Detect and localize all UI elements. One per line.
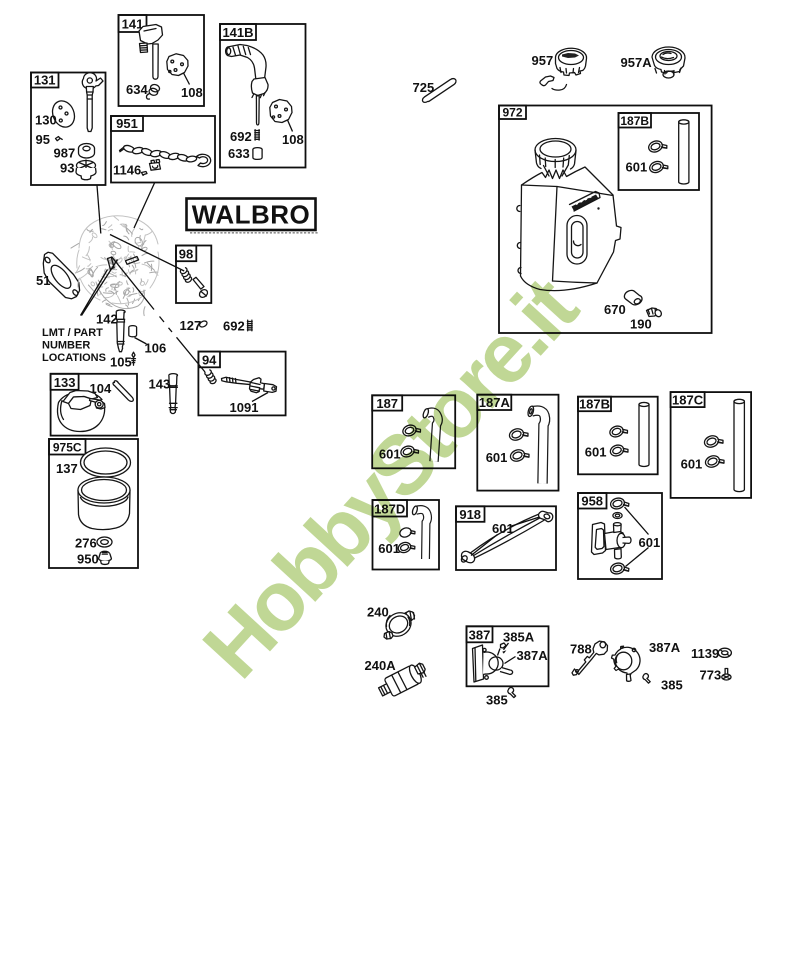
- svg-text:LOCATIONS: LOCATIONS: [42, 352, 106, 364]
- svg-text:670: 670: [604, 302, 626, 317]
- svg-text:187B: 187B: [579, 397, 610, 412]
- svg-text:951: 951: [116, 116, 138, 131]
- svg-text:98: 98: [179, 246, 193, 261]
- svg-text:601: 601: [681, 457, 703, 472]
- svg-text:725: 725: [413, 80, 435, 95]
- svg-text:957: 957: [532, 53, 554, 68]
- svg-text:1146: 1146: [113, 163, 141, 178]
- svg-text:51: 51: [36, 273, 50, 288]
- svg-text:957A: 957A: [621, 55, 653, 70]
- svg-text:95: 95: [36, 132, 50, 147]
- svg-text:601: 601: [639, 535, 661, 550]
- svg-text:142: 142: [96, 312, 118, 327]
- svg-text:130: 130: [35, 113, 57, 128]
- svg-text:108: 108: [181, 85, 203, 100]
- svg-text:601: 601: [585, 445, 607, 460]
- svg-text:127: 127: [180, 318, 202, 333]
- svg-text:141B: 141B: [222, 25, 253, 40]
- svg-text:1091: 1091: [230, 400, 259, 415]
- svg-text:918: 918: [459, 507, 481, 522]
- svg-text:601: 601: [626, 160, 648, 175]
- svg-text:601: 601: [486, 450, 508, 465]
- svg-text:788: 788: [570, 642, 592, 657]
- svg-text:240A: 240A: [365, 658, 397, 673]
- svg-text:387: 387: [469, 627, 491, 642]
- svg-text:385: 385: [661, 678, 683, 693]
- svg-text:987: 987: [54, 146, 76, 161]
- svg-text:385A: 385A: [503, 630, 535, 645]
- svg-text:LMT / PART: LMT / PART: [42, 327, 103, 339]
- svg-text:633: 633: [228, 146, 250, 161]
- svg-text:133: 133: [54, 375, 76, 390]
- svg-text:692: 692: [223, 319, 245, 334]
- svg-text:385: 385: [486, 693, 508, 708]
- svg-text:387A: 387A: [649, 640, 681, 655]
- svg-text:106: 106: [145, 341, 167, 356]
- svg-text:276: 276: [75, 536, 97, 551]
- svg-text:105: 105: [110, 355, 132, 370]
- svg-text:240: 240: [367, 605, 389, 620]
- svg-text:108: 108: [282, 132, 304, 147]
- svg-text:94: 94: [202, 352, 217, 367]
- svg-text:187C: 187C: [672, 392, 704, 407]
- svg-text:387A: 387A: [517, 648, 549, 663]
- svg-text:NUMBER: NUMBER: [42, 340, 90, 352]
- svg-text:692: 692: [230, 129, 252, 144]
- svg-text:187B: 187B: [620, 114, 649, 128]
- svg-text:950: 950: [77, 552, 99, 567]
- svg-text:975C: 975C: [53, 441, 82, 455]
- svg-text:958: 958: [581, 494, 603, 509]
- svg-text:131: 131: [34, 73, 56, 88]
- svg-text:93: 93: [60, 161, 74, 176]
- svg-text:1139: 1139: [691, 646, 719, 661]
- svg-text:143: 143: [149, 377, 171, 392]
- svg-text:634: 634: [126, 82, 148, 97]
- svg-text:137: 137: [56, 461, 78, 476]
- svg-text:WALBRO: WALBRO: [192, 200, 311, 230]
- svg-text:190: 190: [630, 317, 652, 332]
- svg-text:972: 972: [502, 106, 522, 120]
- svg-text:601: 601: [492, 521, 514, 536]
- svg-text:773: 773: [700, 668, 722, 683]
